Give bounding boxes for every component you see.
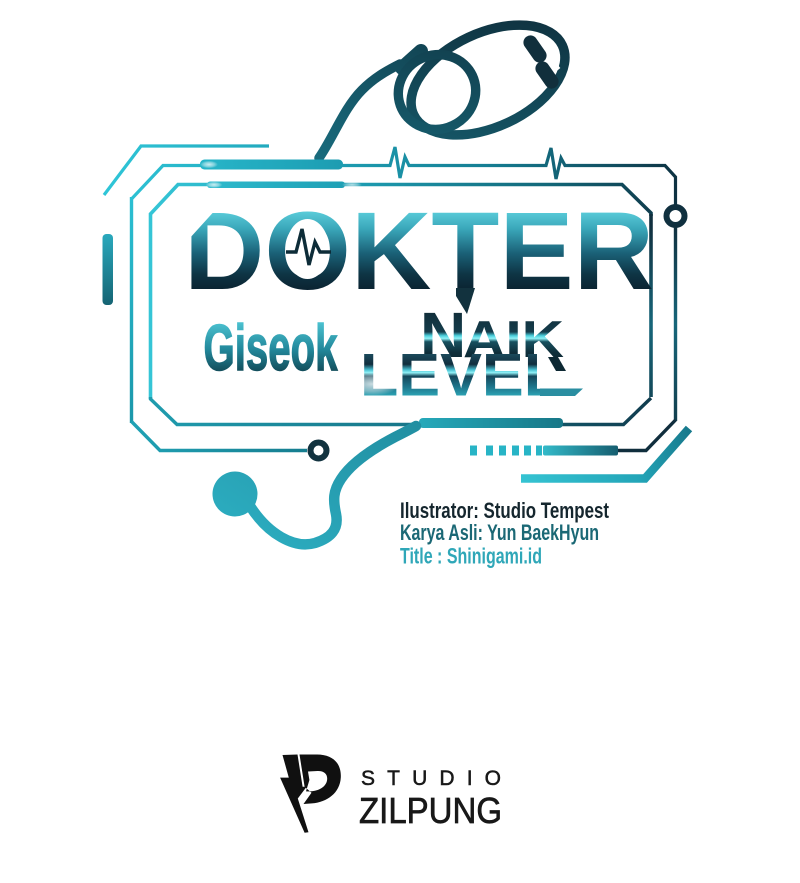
svg-text:ZILPUNG: ZILPUNG <box>359 790 502 831</box>
svg-text:Giseok: Giseok <box>204 311 339 384</box>
svg-text:Title : Shinigami.id: Title : Shinigami.id <box>400 544 542 569</box>
svg-text:Karya Asli: Yun BaekHyun: Karya Asli: Yun BaekHyun <box>400 520 599 545</box>
svg-text:DOKTER: DOKTER <box>184 190 654 313</box>
